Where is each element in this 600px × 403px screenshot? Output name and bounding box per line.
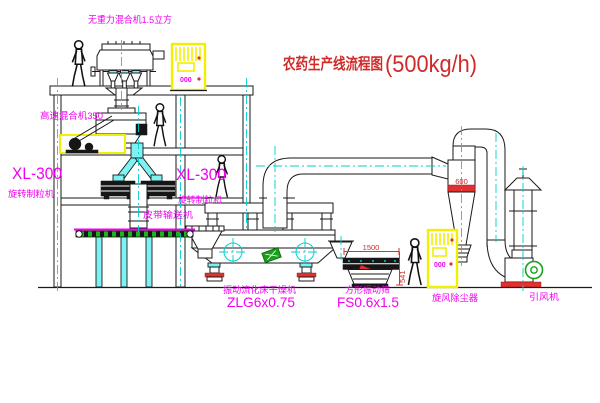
person-figure [72,41,85,87]
person-figure [154,104,166,146]
page-title-capacity: (500kg/h) [385,51,477,78]
indicator-light [449,262,452,265]
fan-label: 引风机 [529,291,559,302]
gravity-free-mixer [91,41,164,112]
flow-diagram-canvas: 000 [0,0,600,403]
indicator-light [197,56,200,59]
process-flow-diagram: 000 [0,0,600,403]
high-speed-mixer-label: 高速混合机350 [40,110,103,122]
indicator-light [197,77,200,80]
fan-motor [526,262,543,279]
cabinet-panel-text: 000 [434,262,446,269]
granulator-left-name: 旋转制粒机 [8,188,54,199]
granulator-right-model: XL-300 [176,166,226,184]
cyclone-diameter-dim: 600 [455,177,468,186]
control-cabinet-2: 000 [428,230,457,287]
exhaust-ducting [205,157,448,231]
granulator-left-model: XL-300 [12,165,62,183]
gravity-mixer-label: 无重力混合机1.5立方 [88,14,172,26]
page-title: 农药生产线流程图 [282,54,383,73]
cyclone-label: 旋风除尘器 [432,292,478,303]
cabinet-panel-text: 000 [180,77,192,84]
indicator-light [450,238,453,241]
control-cabinet-1: 000 [170,44,207,91]
sieve-length-dim: 1500 [363,243,380,252]
person-figure [408,239,421,285]
sieve-height-dim: 541 [398,270,407,283]
belt-conveyor-label: 皮带输送机 [143,209,193,220]
dryer-model-label: ZLG6x0.75 [227,294,295,310]
sieve-model-label: FS0.6x1.5 [337,294,399,310]
granulator-right-name: 旋转制粒机 [178,194,222,205]
